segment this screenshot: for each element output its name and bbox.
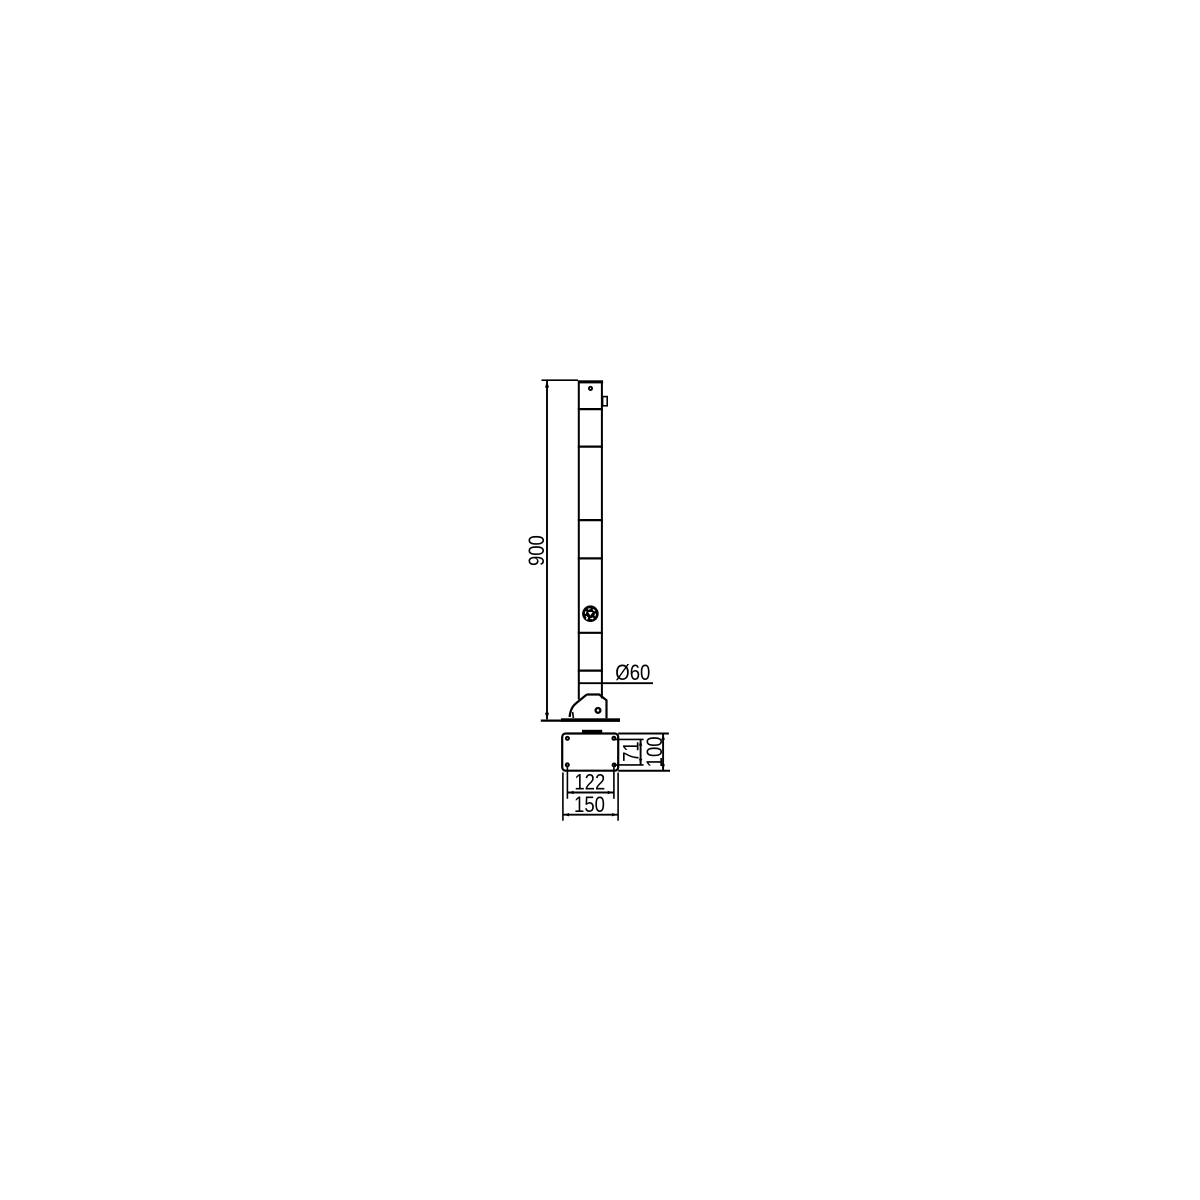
svg-text:122: 122	[574, 771, 605, 795]
svg-text:100: 100	[644, 736, 668, 767]
svg-text:71: 71	[620, 741, 644, 762]
svg-text:150: 150	[574, 793, 605, 817]
svg-text:900: 900	[526, 535, 550, 566]
svg-text:Ø60: Ø60	[615, 662, 650, 686]
